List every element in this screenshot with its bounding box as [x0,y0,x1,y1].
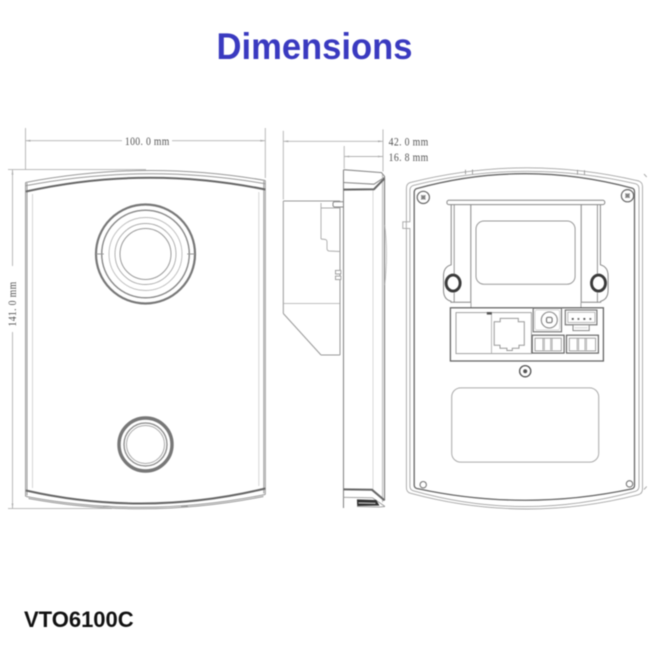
svg-text:100. 0 mm: 100. 0 mm [125,134,170,148]
svg-text:16. 8 mm: 16. 8 mm [389,150,429,164]
svg-text:VTO6100C: VTO6100C [24,607,134,632]
svg-text:141. 0 mm: 141. 0 mm [5,281,19,326]
svg-text:Dimensions: Dimensions [217,26,413,67]
svg-text:42. 0 mm: 42. 0 mm [389,135,429,149]
